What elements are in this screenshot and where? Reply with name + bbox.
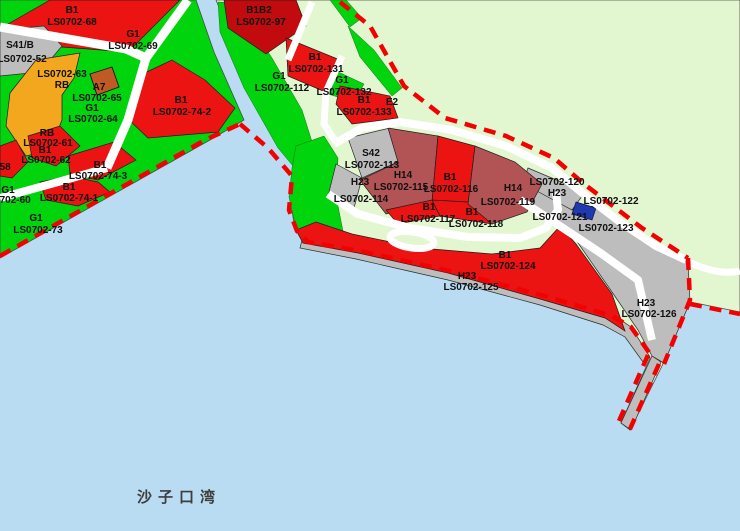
parcel-zone-label: B1 [499, 250, 512, 261]
parcel-code-label: LS0702-52 [0, 54, 47, 65]
parcel-zone-label: H23 [458, 271, 477, 282]
parcel-zone-label: E2 [386, 97, 399, 108]
parcel-zone-label: B1 [444, 172, 457, 183]
parcel-code-label: LS0702-123 [578, 223, 633, 234]
parcel-zone-label: B1B2 [246, 5, 272, 16]
parcel-code-label: LS0702-117 [401, 214, 456, 225]
parcel-zone-label: H23 [637, 298, 656, 309]
parcel-code-label: LS0702-124 [480, 261, 535, 272]
parcel-code-label: LS0702-74-1 [40, 193, 99, 204]
parcel-zone-label: LS0702-63 [37, 69, 87, 80]
parcel-zone-label: B1 [466, 207, 479, 218]
parcel-code-label: LS0702-126 [621, 309, 676, 320]
parcel-zone-label: H14 [504, 183, 523, 194]
parcel-code-label: LS0702-125 [443, 282, 498, 293]
parcel-code-label: LS0702-68 [47, 17, 97, 28]
parcel-zone-label: H23 [351, 177, 370, 188]
parcel-code-label: LS0702-73 [13, 225, 63, 236]
parcel-zone-label: G1 [126, 29, 140, 40]
parcel-code-label: LS0702-131 [288, 64, 343, 75]
bay-name-label: 沙子口湾 [137, 488, 221, 506]
parcel-zone-label: B1 [63, 182, 76, 193]
parcel-code-label: LS0702-69 [108, 41, 158, 52]
parcel-zone-label: H14 [394, 170, 413, 181]
parcel-code-label: LS0702-133 [336, 107, 391, 118]
parcel-zone-label: LS0702-120 [529, 177, 584, 188]
parcel-zone-label: S41/B [6, 40, 34, 51]
map-canvas: B1 LS0702-68 G1 LS0702-69 S41/B LS0702-5… [0, 0, 740, 531]
parcel-zone-label: B1 [66, 5, 79, 16]
parcel-code-label: LS0702-114 [334, 194, 389, 205]
parcel-code-label: LS0702-118 [449, 219, 504, 230]
parcel-code-label: LS0702-97 [236, 17, 286, 28]
parcel-code-label: LS0702-119 [481, 197, 536, 208]
parcel-code-label: LS0702-115 [374, 182, 429, 193]
parcel-code-label: H23 [548, 188, 567, 199]
parcel-code-label: LS0702-64 [68, 114, 118, 125]
parcel-zone-label: B1 [309, 52, 322, 63]
parcel-code-label: RB [55, 80, 69, 91]
parcel-code-label: LS0702-122 [583, 196, 638, 207]
parcel-code-label: LS0702-60 [0, 195, 31, 206]
parcel-code-label: LS0702-116 [424, 184, 479, 195]
parcel-zone-label: G1 [272, 71, 286, 82]
parcel-zone-label: B1 [358, 95, 371, 106]
parcel-code-label: LS0702-62 [21, 155, 71, 166]
planning-map: B1 LS0702-68 G1 LS0702-69 S41/B LS0702-5… [0, 0, 740, 531]
parcel-zone-label: S42 [362, 148, 380, 159]
parcel-code-label: LS0702-113 [345, 160, 400, 171]
parcel-zone-label: B1 [423, 202, 436, 213]
parcel-zone-label: A7 [93, 82, 106, 93]
parcel-zone-label: G1 [29, 213, 43, 224]
parcel-code-label: LS0702-74-3 [69, 171, 128, 182]
parcel-code-label: LS0702-121 [532, 212, 587, 223]
parcel-zone-label: B1 [94, 160, 107, 171]
parcel-code-label: LS0702-112 [255, 83, 310, 94]
parcel-zone-label: G1 [335, 75, 349, 86]
parcel-code-label: LS0702-58 [0, 162, 11, 173]
parcel-code-label: LS0702-74-2 [153, 107, 212, 118]
parcel-zone-label: B1 [175, 95, 188, 106]
parcel-zone-label: G1 [85, 103, 99, 114]
